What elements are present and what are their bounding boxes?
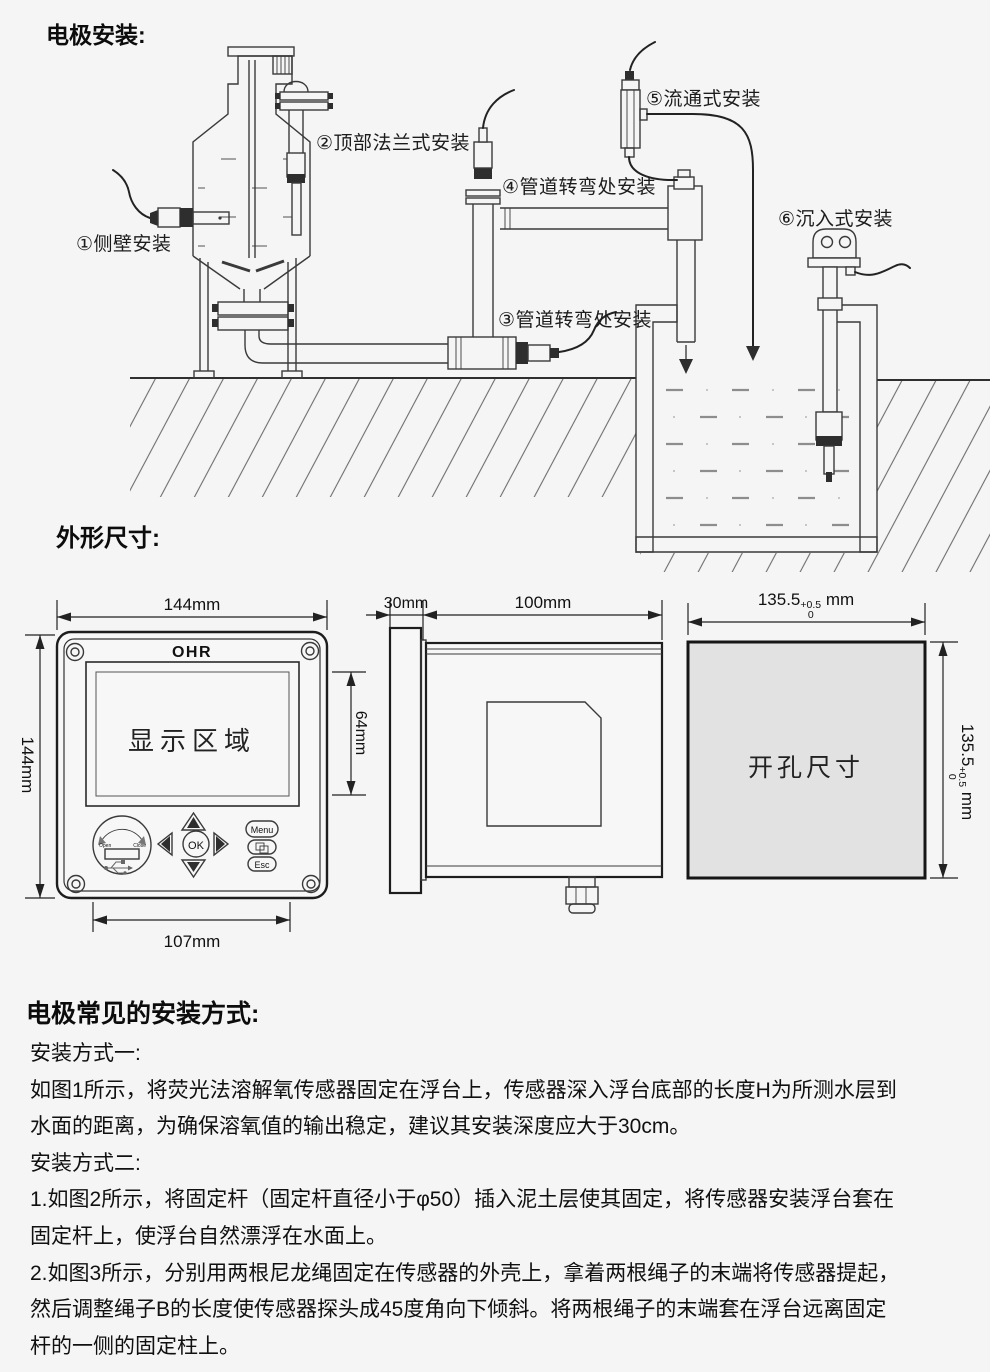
dimensions-section-title: 外形尺寸: (56, 518, 160, 553)
usb-close-label: Close (133, 843, 146, 849)
display-height-dimension: 64mm (332, 672, 369, 795)
cutout-height-unit: mm (958, 792, 977, 820)
installation-diagram (0, 0, 990, 596)
cutout-width-value: 135.5+0.50 mm (731, 590, 881, 620)
front-height-dimension: 144mm (18, 635, 55, 898)
front-width-value: 144mm (164, 595, 221, 614)
instruction-line: 2.如图3所示，分别用两根尼龙绳固定在传感器的外壳上，拿着两根绳子的末端将传感器… (30, 1256, 970, 1293)
install-label-top-flange: ②顶部法兰式安装 (316, 128, 470, 155)
front-width-dimension: 144mm (57, 595, 327, 630)
instruction-line: 1.如图2所示，将固定杆（固定杆直径小于φ50）插入泥土层使其固定，将传感器安装… (30, 1182, 970, 1219)
cutout-label: 开孔尺寸 (748, 754, 864, 782)
install-label-pipe-bend-4: ④管道转弯处安装 (502, 172, 656, 199)
panel-cutout-drawing: 开孔尺寸 (688, 603, 958, 878)
instruction-line: 固定杆上，使浮台自然漂浮在水面上。 (30, 1219, 970, 1256)
instruction-line: 安装方式二: (30, 1146, 970, 1183)
instruction-line: 水面的距离，为确保溶氧值的输出稳定，建议其安装深度应大于30cm。 (30, 1109, 970, 1146)
cutout-width-number: 135.5 (758, 590, 801, 609)
instruction-line: 安装方式一: (30, 1036, 970, 1073)
instruction-line: 然后调整绳子B的长度使传感器探头成45度角向下倾斜。将两根绳子的末端套在浮台远离… (30, 1292, 970, 1329)
ok-key-label: OK (188, 840, 205, 852)
front-view-drawing: OHR 显示区域 Open Close (18, 595, 369, 951)
manual-page: OHR 显示区域 Open Close (0, 0, 990, 1372)
display-area-label: 显示区域 (128, 727, 256, 756)
bezel-depth-value: 30mm (384, 595, 428, 612)
front-height-value: 144mm (18, 737, 37, 794)
cutout-height-value: 135.5+0.50 mm (947, 692, 977, 852)
front-bottom-width-value: 107mm (164, 932, 221, 951)
front-bottom-width-dimension: 107mm (93, 902, 290, 951)
cutout-width-unit: mm (826, 590, 854, 609)
install-label-side-wall: ①侧壁安装 (76, 229, 172, 256)
install-label-submersion: ⑥沉入式安装 (778, 204, 893, 231)
display-height-value: 64mm (352, 711, 369, 755)
cutout-height-tolerance: +0.50 (947, 766, 967, 787)
dimension-drawings: OHR 显示区域 Open Close (0, 585, 990, 965)
install-label-pipe-bend-3: ③管道转弯处安装 (498, 305, 652, 332)
install-label-flow-through: ⑤流通式安装 (646, 84, 761, 111)
install-section-title: 电极安装: (46, 16, 146, 50)
esc-key-label: Esc (254, 860, 270, 870)
instruction-line: 杆的一侧的固定柱上。 (30, 1329, 970, 1366)
ground-hatching (130, 378, 990, 572)
menu-key-label: Menu (251, 825, 274, 835)
body-depth-value: 100mm (515, 593, 572, 612)
cutout-height-number: 135.5 (958, 724, 977, 767)
methods-section-title: 电极常见的安装方式: (26, 994, 259, 1030)
usb-open-label: Open (99, 843, 111, 849)
installation-instructions: 安装方式一: 如图1所示，将荧光法溶解氧传感器固定在浮台上，传感器深入浮台底部的… (30, 1036, 970, 1365)
cutout-width-tolerance: +0.50 (800, 600, 821, 620)
brand-logo: OHR (172, 644, 212, 661)
side-view-drawing: 30mm 100mm (366, 593, 662, 913)
cable-gland (566, 877, 598, 913)
instruction-line: 如图1所示，将荧光法溶解氧传感器固定在浮台上，传感器深入浮台底部的长度H为所测水… (30, 1073, 970, 1110)
